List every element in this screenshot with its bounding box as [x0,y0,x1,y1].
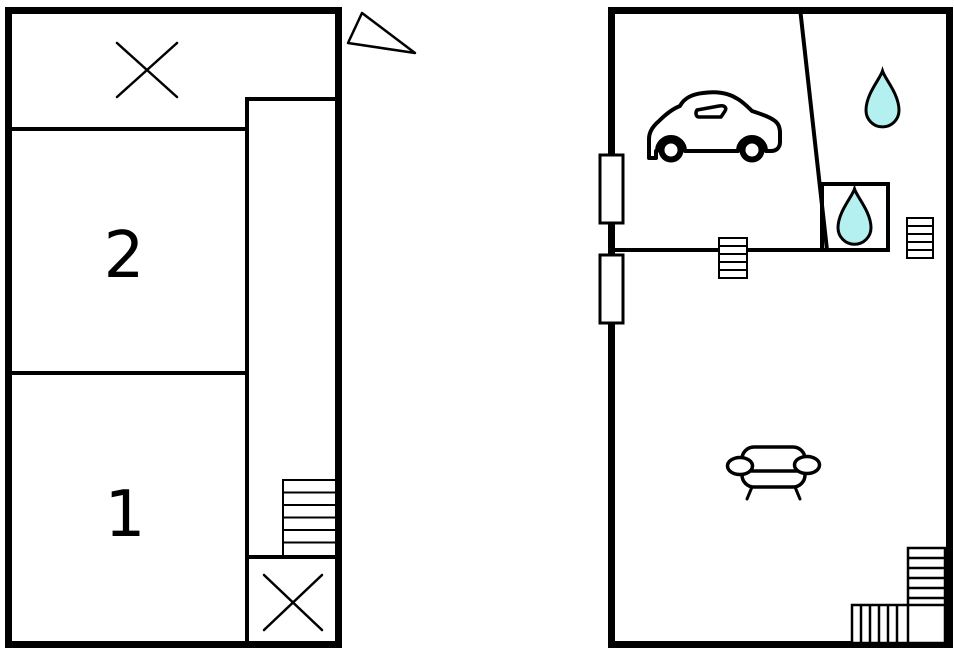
window-icon [600,255,623,323]
car-wheel [743,141,762,160]
staircase-icon [719,238,747,278]
left-floor-plan: 2 1 [5,11,415,646]
room-label-1: 1 [105,478,146,552]
staircase-icon [283,480,336,556]
north-marker-icon [348,13,415,53]
sofa-armrest [728,458,753,475]
window-icon [600,155,623,223]
car-wheel [662,141,681,160]
right-floor-plan [600,8,950,645]
sofa-armrest [795,457,820,474]
staircase-icon [907,218,933,258]
floor-plan-drawing: 2 1 [0,0,954,652]
floor-plan-canvas: 2 1 [0,0,954,652]
room-label-2: 2 [104,219,145,293]
